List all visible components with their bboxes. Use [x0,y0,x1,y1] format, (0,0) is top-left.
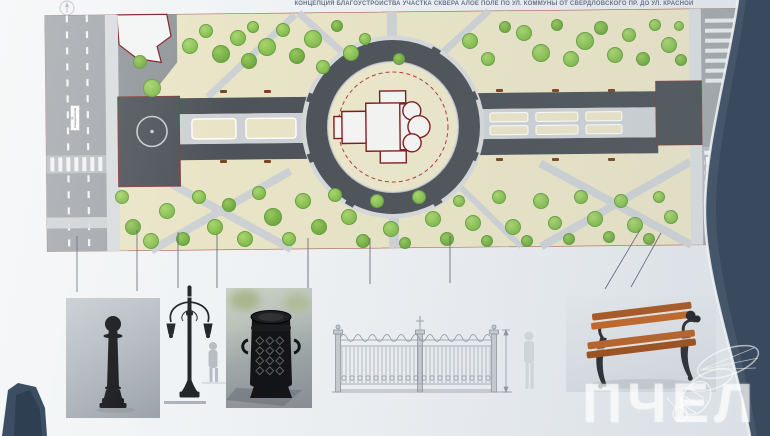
bee-logo-icon [662,332,768,436]
photographed-landscaping-concept: КОНЦЕПЦИЯ БЛАГОУСТРОЙСТВА УЧАСТКА СКВЕРА… [0,0,770,436]
